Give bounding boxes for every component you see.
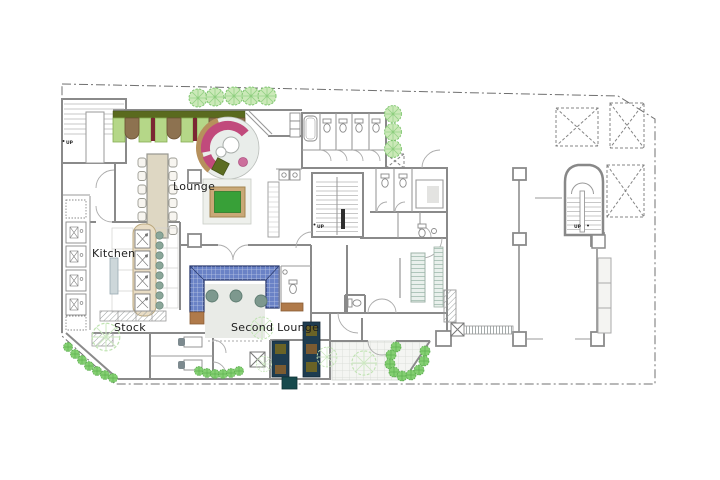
room-label-lounge: Lounge: [173, 180, 215, 193]
stock-rooms: [178, 337, 202, 370]
void-box-3: [607, 165, 644, 217]
void-box-2: [610, 103, 644, 148]
machine-unit: [427, 186, 439, 203]
room-label-kitchen: Kitchen: [92, 247, 135, 260]
room-label-stock: Stock: [114, 321, 146, 334]
locker-stack: [290, 113, 300, 137]
desk-chair: [178, 361, 185, 369]
east-bench: [598, 258, 611, 333]
floor-plan-svg: UP: [0, 0, 720, 480]
wall-shelf: [434, 247, 443, 307]
teal-planter: [282, 377, 297, 389]
kitchen-hood: [110, 258, 118, 294]
desk: [184, 337, 202, 347]
hall-furniture: [400, 247, 443, 307]
long-table: [411, 253, 425, 302]
bathroom-block: [290, 113, 380, 141]
void-boxes: [386, 103, 644, 217]
landing-box: [451, 323, 464, 336]
trees-top-row: [189, 87, 276, 107]
pink-stool: [239, 158, 248, 167]
northwest-stair-up-label: UP: [66, 140, 74, 146]
desk-chair: [178, 338, 185, 346]
trees-courtyard: [385, 106, 402, 158]
bushes-south-row: [195, 367, 244, 379]
toilets: [381, 174, 426, 237]
central-stair: UP: [314, 177, 359, 235]
round-sofa-lounge: [197, 117, 259, 179]
kitchen-shelf: [100, 311, 166, 321]
round-table-small: [216, 147, 226, 157]
stock-shelf: [92, 333, 113, 346]
tall-cabinet: [268, 182, 279, 237]
floor-plan-page: UP: [0, 0, 720, 480]
east-stair-up-label: UP: [574, 224, 582, 230]
kitchen-wall-appliances: [66, 200, 86, 330]
brown-seat: [190, 312, 204, 324]
vanity-sinks: [279, 170, 300, 180]
void-box-1: [556, 108, 598, 146]
nook-toilet: [348, 299, 361, 307]
exterior-steps: [464, 326, 513, 334]
brown-counter: [281, 303, 303, 311]
washroom-fixtures: [283, 270, 297, 294]
counter-stools: [156, 232, 163, 309]
room-label-second-lounge: Second Lounge: [231, 321, 319, 334]
central-stair-up-label: UP: [317, 224, 325, 230]
stair-wall: [341, 209, 345, 229]
exterior-stair: [444, 290, 513, 336]
bushes-southwest: [64, 323, 120, 382]
east-stair: UP: [565, 165, 605, 248]
small-sink: [432, 229, 437, 234]
